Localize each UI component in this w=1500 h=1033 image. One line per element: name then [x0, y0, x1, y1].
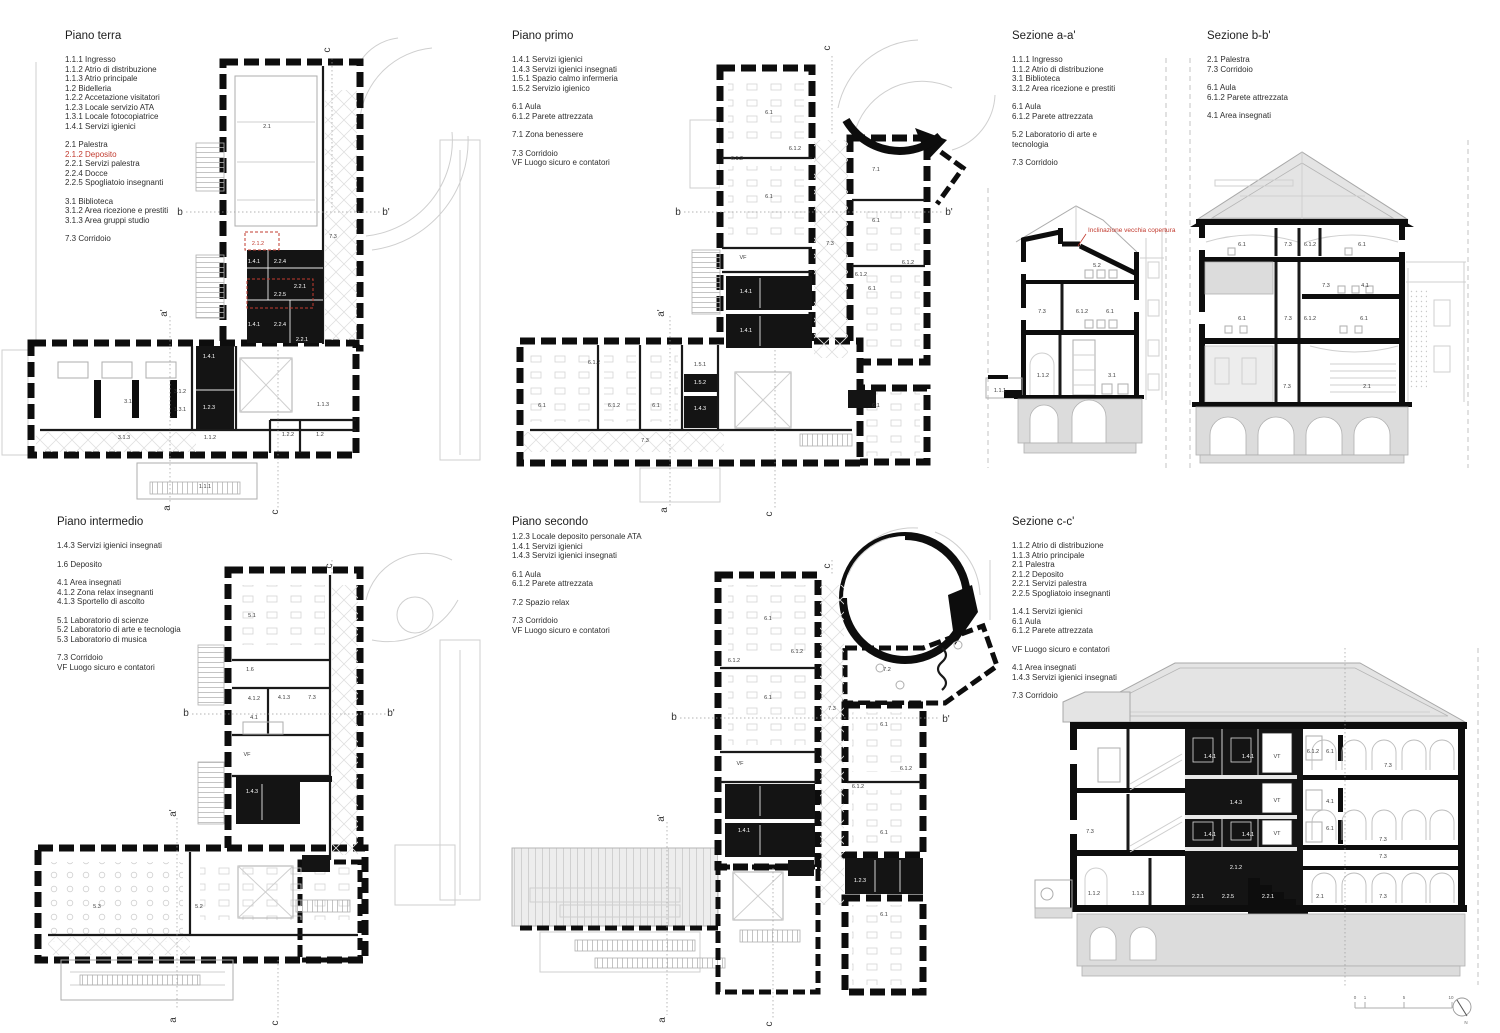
room-label: VF	[243, 752, 251, 758]
room-label: 1.4.3	[246, 789, 258, 795]
room-label: 6.1.2	[1307, 749, 1319, 755]
context-facade	[1140, 232, 1164, 400]
room-label: a	[657, 1017, 668, 1023]
room-label: 6.1	[1326, 749, 1334, 755]
room-label: 6.1	[880, 830, 888, 836]
room-label: a'	[159, 309, 170, 317]
room-label: 5.2	[1093, 263, 1101, 269]
room-label: 6.1.2	[900, 766, 912, 772]
section-cc: 1.4.11.4.1VT6.1.26.17.31.4.3VT4.11.4.11.…	[1035, 648, 1478, 988]
stair	[196, 255, 224, 318]
room-label: N	[1464, 1020, 1467, 1025]
room-label: 1.6	[246, 667, 254, 673]
room-label: a'	[168, 809, 179, 817]
room-label: 1.1.3	[1132, 891, 1144, 897]
plan-piano-primo: 6.16.1.26.1.26.17.3VF1.4.11.4.17.16.16.1…	[520, 40, 995, 517]
room-label: c	[822, 46, 833, 51]
room-label: 6.1	[1358, 242, 1366, 248]
room-label: 1.4.1	[1242, 754, 1254, 760]
stair	[196, 143, 224, 191]
room-label: 1.1.1	[994, 388, 1006, 394]
room-label: 2.1	[1363, 384, 1371, 390]
room-label: b'	[945, 207, 953, 218]
room-label: 6.1.2	[852, 784, 864, 790]
stair	[595, 958, 725, 968]
room-label: 1.2	[316, 432, 324, 438]
room-label: 7.3	[828, 706, 836, 712]
elevator	[788, 860, 814, 876]
room-label: 1.1.2	[1037, 373, 1049, 379]
room-label: 6.1.2	[789, 146, 801, 152]
room-label: c	[764, 1022, 775, 1027]
room-label: 1	[1364, 995, 1367, 1000]
drawings-canvas: 2.17.32.1.21.4.12.2.42.2.12.2.51.4.12.2.…	[0, 0, 1500, 1033]
shaft-vt	[1262, 733, 1292, 773]
room-label: 1.1.2	[204, 435, 216, 441]
room-label: a'	[656, 814, 667, 822]
room-label: 4.1	[250, 715, 258, 721]
room-label: 1.1.3	[317, 402, 329, 408]
room-label: 1.4.1	[203, 354, 215, 360]
room-label: 0	[1354, 995, 1357, 1000]
room-label: 6.1.2	[731, 156, 743, 162]
room-label: 6.1.2	[902, 260, 914, 266]
stair	[800, 434, 852, 446]
plan-piano-intermedio: 5.11.64.1.24.1.37.34.1VF1.4.35.35.2bb'a'…	[38, 553, 480, 1025]
room-label: 5	[1403, 995, 1406, 1000]
room-label: 6.1.2	[588, 360, 600, 366]
room-label: 1.4.1	[738, 828, 750, 834]
room-label: 6.1.2	[1076, 309, 1088, 315]
elevator	[302, 855, 330, 872]
room-label: 6.1	[872, 403, 880, 409]
room-label: 1.1.1	[199, 484, 211, 490]
room-label: 7.3	[329, 234, 337, 240]
room-label: 6.1	[1106, 309, 1114, 315]
room-label: 6.1	[764, 695, 772, 701]
room-label: 1.4.1	[248, 322, 260, 328]
room-label: 3.1.2	[174, 389, 186, 395]
room-label: 7.3	[1284, 316, 1292, 322]
room-label: VF	[736, 761, 744, 767]
room-label: b'	[387, 708, 395, 719]
room-label: a	[168, 1017, 179, 1023]
section-bb: 6.17.36.1.26.17.34.16.17.36.1.26.17.32.1	[1190, 58, 1468, 468]
room-label: c	[764, 512, 775, 517]
room-label: b	[177, 207, 183, 218]
stair	[198, 645, 224, 705]
room-label: 6.1	[880, 722, 888, 728]
bookshelf	[1073, 340, 1095, 395]
room-label: 3.1	[124, 399, 132, 405]
room-label: 6.1	[872, 218, 880, 224]
room-label: 7.3	[1384, 763, 1392, 769]
plan-piano-secondo: 6.16.1.26.1.26.17.37.26.1VF6.1.26.1.21.4…	[512, 528, 997, 1027]
lower-wing-roof	[512, 848, 718, 926]
room-label: 1.4.1	[740, 328, 752, 334]
room-label: c	[270, 510, 281, 515]
room-label: 7.3	[1322, 283, 1330, 289]
context-lines	[366, 553, 480, 905]
room-label: b	[671, 712, 677, 723]
room-label: 7.3	[1379, 854, 1387, 860]
room-label: 2.2.5	[1222, 894, 1234, 900]
gallery-arches	[1312, 740, 1454, 903]
room-label: 1.2.3	[854, 878, 866, 884]
wc-small	[684, 396, 717, 428]
room-label: c	[322, 48, 333, 53]
room-label: 6.1	[538, 403, 546, 409]
room-label: 4.1.3	[278, 695, 290, 701]
section-aa: Inclinazione vecchia copertura5.27.36.1.…	[986, 58, 1176, 468]
relax-room	[845, 626, 997, 703]
room-label: 5.2	[195, 904, 203, 910]
corridor-skylight-hatch	[332, 585, 358, 855]
room-label: b	[675, 207, 681, 218]
north-arrow	[1453, 998, 1471, 1016]
context-facade	[1406, 262, 1466, 402]
room-label: 4.1	[1326, 799, 1334, 805]
room-label: 1.5.2	[694, 380, 706, 386]
room-label: VT	[1273, 798, 1281, 804]
room-label: 4.1.2	[248, 696, 260, 702]
room-label: 1.4.1	[248, 259, 260, 265]
scale-bar-labels: 01510N	[1354, 995, 1468, 1025]
corridor-hatch	[814, 140, 848, 358]
room-label: 6.1.2	[608, 403, 620, 409]
room-label: 6.1	[868, 286, 876, 292]
entrance-stair	[80, 975, 200, 985]
room-label: 1.4.3	[694, 406, 706, 412]
room-label: 7.3	[308, 695, 316, 701]
room-label: c	[270, 1021, 281, 1026]
room-label: 4.1	[1361, 283, 1369, 289]
entrance-stair	[150, 482, 240, 494]
room-label: 7.3	[1283, 384, 1291, 390]
room-label: 7.1	[872, 167, 880, 173]
room-label: 7.3	[1379, 894, 1387, 900]
room-label: 6.1	[1360, 316, 1368, 322]
room-label: 2.2.5	[274, 292, 286, 298]
room-label: 6.1	[764, 616, 772, 622]
room-label: b	[183, 708, 189, 719]
room-label: VT	[1273, 754, 1281, 760]
room-label: 5.1	[248, 613, 256, 619]
room-label: 6.1	[765, 110, 773, 116]
room-label: 1.5.1	[694, 362, 706, 368]
room-label: 7.3	[1379, 837, 1387, 843]
room-label: 7.3	[1284, 242, 1292, 248]
room-label: 7.3	[641, 438, 649, 444]
room-label: 2.1	[263, 124, 271, 130]
room-label: 6.1.2	[1304, 316, 1316, 322]
stair	[296, 900, 350, 912]
stair	[740, 930, 800, 942]
room-label: 1.4.1	[1242, 832, 1254, 838]
room-label: 1.4.3	[1230, 800, 1242, 806]
room-label: a	[162, 505, 173, 511]
room-label: a'	[656, 309, 667, 317]
room-label: 7.2	[883, 667, 891, 673]
stair	[575, 940, 695, 951]
room-label: 2.2.1	[296, 337, 308, 343]
room-label: 7.3	[1086, 829, 1094, 835]
room-label: 2.2.1	[1192, 894, 1204, 900]
corridor-hatch	[820, 585, 844, 905]
room-label: 1.4.1	[740, 289, 752, 295]
room-label: 3.1.3	[118, 435, 130, 441]
room-label: 5.3	[93, 904, 101, 910]
room-label: 1.2.2	[282, 432, 294, 438]
room-label: 1.4.1	[1204, 754, 1216, 760]
room-label: 2.1	[1316, 894, 1324, 900]
room-label: c	[822, 564, 833, 569]
room-label: 7.3	[826, 241, 834, 247]
plan-piano-terra: 2.17.32.1.21.4.12.2.42.2.12.2.51.4.12.2.…	[2, 38, 480, 515]
room-label: 6.1.2	[728, 658, 740, 664]
room-label: 6.1	[1326, 826, 1334, 832]
room-label: 6.1.2	[1304, 242, 1316, 248]
room-label: 2.2.1	[294, 284, 306, 290]
room-label: 2.1.2	[252, 241, 264, 247]
room-label: b'	[382, 207, 390, 218]
room-label: 1.4.1	[1204, 832, 1216, 838]
room-label: 6.1	[1238, 316, 1246, 322]
room-label: 2.2.1	[1262, 894, 1274, 900]
room-label: 10	[1448, 995, 1454, 1000]
wc-block	[725, 784, 815, 819]
room-label: 2.2.4	[274, 322, 286, 328]
room-label: VT	[1273, 831, 1281, 837]
room-label: 6.1.2	[855, 272, 867, 278]
room-label: VF	[739, 255, 747, 261]
room-label: Inclinazione vecchia copertura	[1088, 227, 1176, 234]
room-label: 1.2.3	[203, 405, 215, 411]
room-label: 6.1.2	[791, 649, 803, 655]
room-label: 6.1	[880, 912, 888, 918]
room-label: 1.1.2	[1088, 891, 1100, 897]
room-label: b'	[942, 714, 950, 725]
room-label: c	[324, 564, 335, 569]
room-label: 6.1	[1238, 242, 1246, 248]
stair	[198, 762, 224, 824]
room-label: 6.1	[652, 403, 660, 409]
music-room-chairs	[48, 862, 183, 942]
drawing-sheet: Piano terra1.1.1 Ingresso1.1.2 Atrio di …	[0, 0, 1500, 1033]
corridor-skylight-hatch	[325, 90, 357, 340]
scale-bar: 01510N	[1354, 995, 1471, 1025]
room-label: a	[659, 507, 670, 513]
stair	[692, 250, 720, 314]
room-label: 3.1	[1108, 373, 1116, 379]
room-label: 6.1	[765, 194, 773, 200]
room-label: 2.2.4	[274, 259, 286, 265]
room-label: 1.3.1	[174, 407, 186, 413]
room-label: 2.1.2	[1230, 865, 1242, 871]
room-label: 7.3	[1038, 309, 1046, 315]
deposito-ata	[845, 858, 923, 894]
